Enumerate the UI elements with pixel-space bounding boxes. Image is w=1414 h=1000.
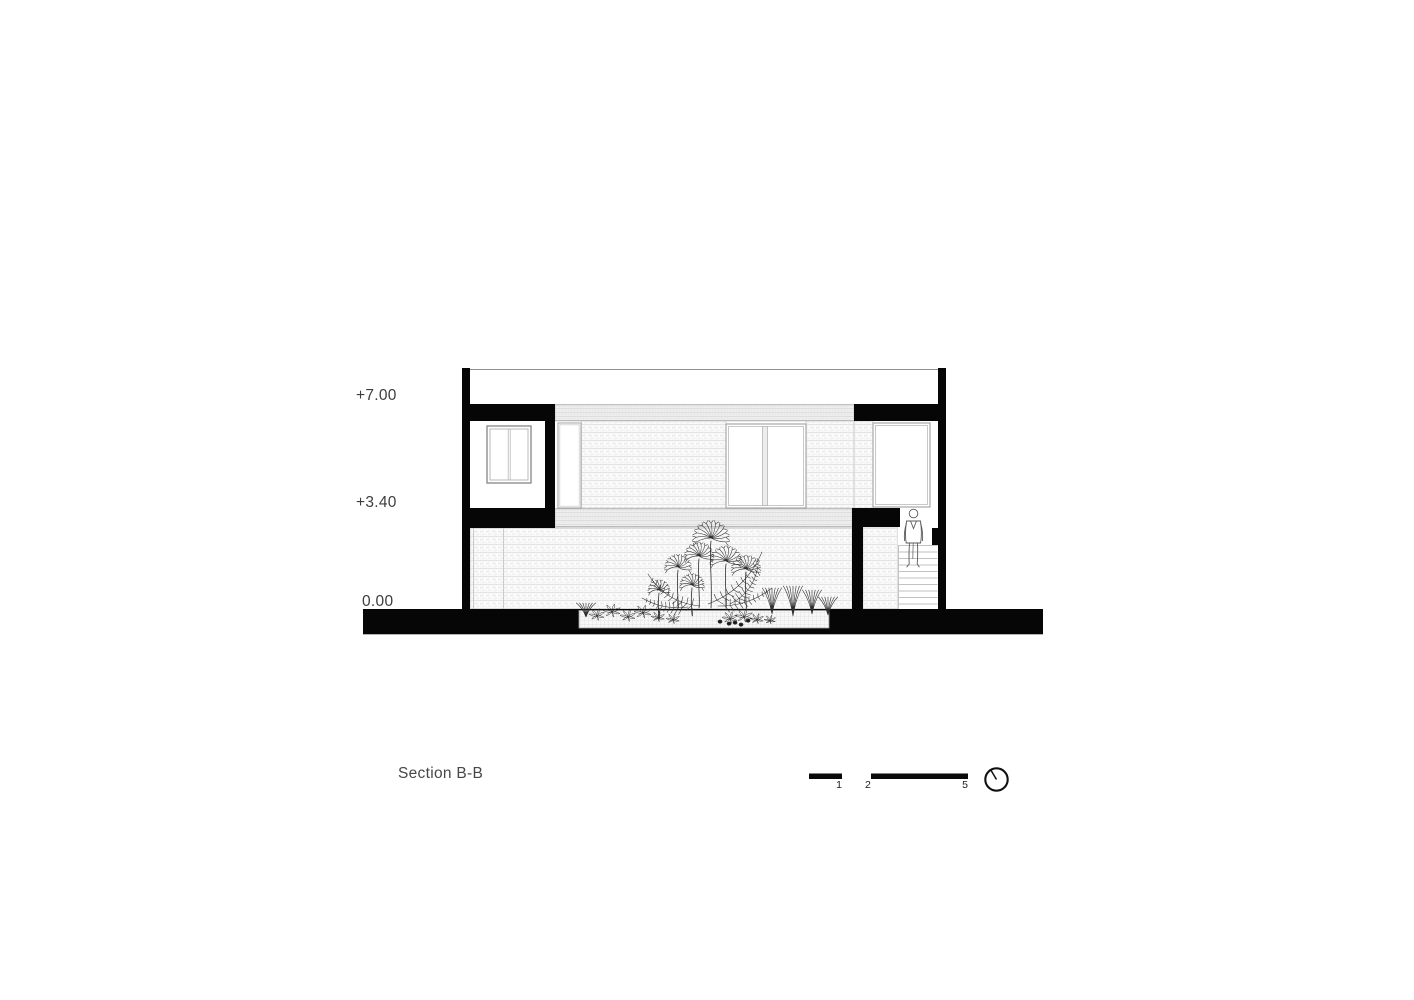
window-upper-left [487,426,531,483]
window-strip-upper [558,423,581,508]
drawing-sheet: +7.00 +3.40 0.00 Section B-B 1 2 5 [0,0,1414,1000]
window-upper-middle [726,424,806,508]
level-label-ground: 0.00 [362,594,393,610]
drawing-title: Section B-B [398,766,483,782]
scale-bar-segment-2 [871,774,968,780]
section-drawing [0,0,1414,1000]
scale-tick-5: 5 [954,780,968,791]
scale-bar [809,774,968,780]
scale-tick-2: 2 [865,780,871,791]
planter-bed [579,611,829,629]
level-label-roof: +7.00 [356,388,397,404]
window-upper-right [873,423,930,507]
scale-tick-1: 1 [826,780,842,791]
north-circle-icon [985,768,1007,790]
level-label-first-floor: +3.40 [356,495,397,511]
ground-slab [363,609,1043,635]
roof-parapet [462,370,946,405]
